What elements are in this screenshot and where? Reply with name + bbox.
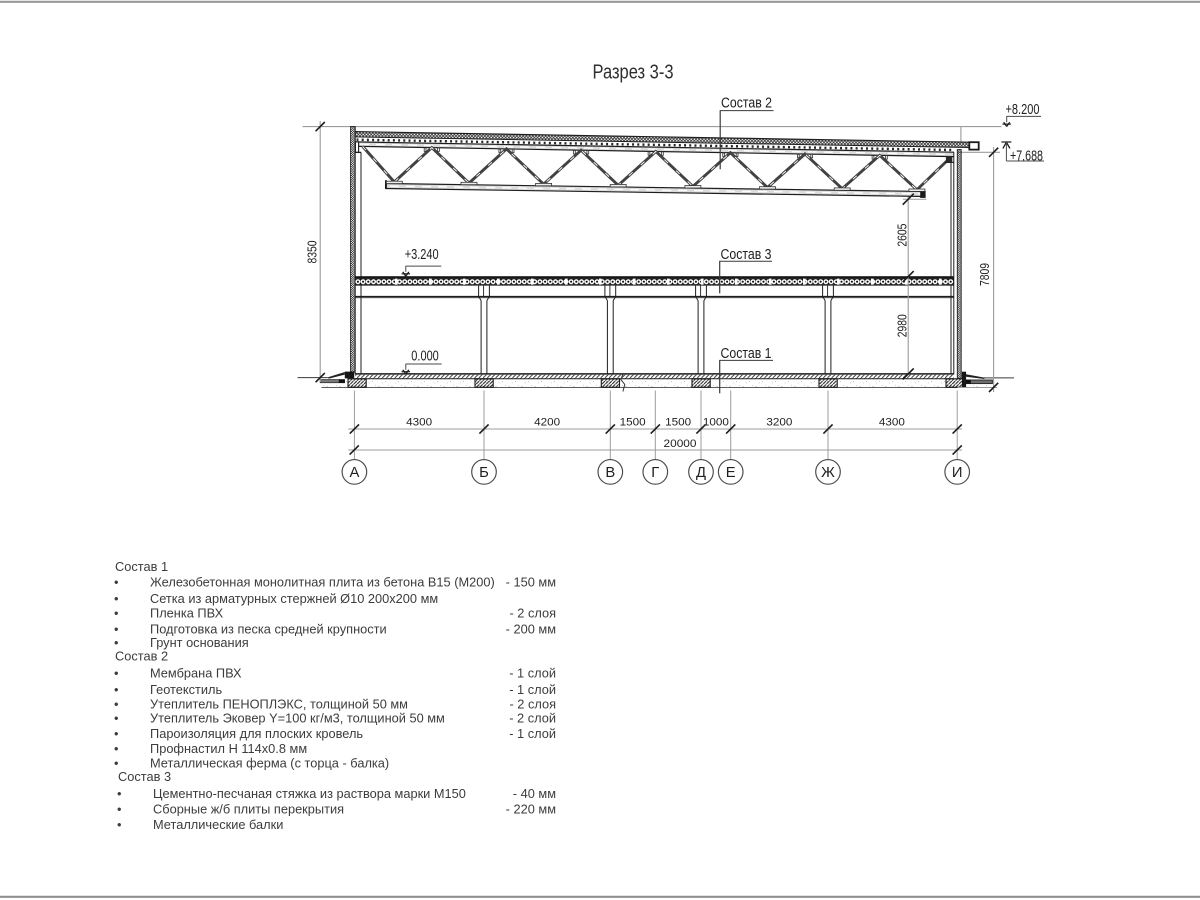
svg-text:- 2 слоя: - 2 слоя xyxy=(509,606,556,621)
svg-text:В: В xyxy=(605,465,615,481)
svg-text:- 40 мм: - 40 мм xyxy=(513,786,556,801)
svg-text:Мембрана ПВХ: Мембрана ПВХ xyxy=(150,666,242,681)
svg-text:Е: Е xyxy=(726,465,736,481)
svg-text:Г: Г xyxy=(651,465,659,481)
svg-text:- 1 слой: - 1 слой xyxy=(509,726,556,741)
svg-text:•: • xyxy=(114,606,118,621)
svg-text:1500: 1500 xyxy=(665,417,691,429)
svg-text:4300: 4300 xyxy=(406,417,432,429)
svg-text:•: • xyxy=(114,575,118,590)
svg-text:2980: 2980 xyxy=(894,314,909,337)
svg-text:Состав 1: Состав 1 xyxy=(115,559,168,574)
svg-text:Геотекстиль: Геотекстиль xyxy=(150,682,222,697)
svg-text:Профнастил Н 114x0.8 мм: Профнастил Н 114x0.8 мм xyxy=(150,741,307,756)
svg-text:•: • xyxy=(114,741,118,756)
svg-text:2605: 2605 xyxy=(894,224,909,247)
svg-text:7809: 7809 xyxy=(977,263,992,286)
svg-text:1000: 1000 xyxy=(703,417,729,429)
svg-text:Состав 2: Состав 2 xyxy=(721,95,772,111)
svg-text:3200: 3200 xyxy=(766,417,792,429)
svg-text:- 200 мм: - 200 мм xyxy=(506,622,556,637)
svg-text:Утеплитель ПЕНОПЛЭКС, толщиной: Утеплитель ПЕНОПЛЭКС, толщиной 50 мм xyxy=(150,697,408,712)
svg-text:4200: 4200 xyxy=(534,417,560,429)
svg-text:+7.688: +7.688 xyxy=(1010,149,1043,165)
svg-text:Железобетонная монолитная плит: Железобетонная монолитная плита из бетон… xyxy=(150,575,495,590)
svg-text:Разрез 3-3: Разрез 3-3 xyxy=(593,62,674,84)
svg-text:- 150 мм: - 150 мм xyxy=(506,575,556,590)
svg-text:Пленка ПВХ: Пленка ПВХ xyxy=(150,606,224,621)
svg-text:•: • xyxy=(114,591,118,606)
svg-text:Цементно-песчаная стяжка из ра: Цементно-песчаная стяжка из раствора мар… xyxy=(153,786,466,801)
svg-text:- 2 слой: - 2 слой xyxy=(509,711,556,726)
svg-text:Сетка из арматурных стержней Ø: Сетка из арматурных стержней Ø10 200x200… xyxy=(150,591,438,606)
svg-text:- 1 слой: - 1 слой xyxy=(509,666,556,681)
svg-text:+8.200: +8.200 xyxy=(1006,102,1040,118)
svg-text:•: • xyxy=(117,802,121,817)
svg-text:Металлическая ферма (с торца -: Металлическая ферма (с торца - балка) xyxy=(150,756,389,771)
svg-text:Ж: Ж xyxy=(821,465,835,481)
svg-text:И: И xyxy=(952,465,963,481)
svg-text:Состав 3: Состав 3 xyxy=(118,769,171,784)
svg-text:+3.240: +3.240 xyxy=(405,247,439,263)
svg-text:Д: Д xyxy=(696,465,706,481)
svg-text:Б: Б xyxy=(479,465,489,481)
svg-text:8350: 8350 xyxy=(305,241,320,264)
svg-text:Состав 1: Состав 1 xyxy=(721,346,772,362)
svg-text:20000: 20000 xyxy=(664,438,697,450)
svg-text:А: А xyxy=(349,465,359,481)
svg-text:•: • xyxy=(114,666,118,681)
svg-text:4300: 4300 xyxy=(879,417,905,429)
svg-text:Состав 2: Состав 2 xyxy=(115,649,168,664)
svg-text:0.000: 0.000 xyxy=(411,349,439,365)
svg-text:•: • xyxy=(114,711,118,726)
svg-text:•: • xyxy=(114,726,118,741)
svg-text:1500: 1500 xyxy=(620,417,646,429)
svg-text:- 2 слоя: - 2 слоя xyxy=(509,697,556,712)
svg-text:•: • xyxy=(117,786,121,801)
svg-text:Пароизоляция для плоских крове: Пароизоляция для плоских кровель xyxy=(150,726,363,741)
svg-text:Утеплитель Эковер Y=100 кг/м3,: Утеплитель Эковер Y=100 кг/м3, толщиной … xyxy=(150,711,445,726)
svg-text:•: • xyxy=(114,682,118,697)
svg-text:Сборные ж/б плиты перекрытия: Сборные ж/б плиты перекрытия xyxy=(153,802,344,817)
svg-text:- 1 слой: - 1 слой xyxy=(509,682,556,697)
svg-text:•: • xyxy=(117,817,121,832)
svg-text:•: • xyxy=(114,697,118,712)
svg-text:Металлические балки: Металлические балки xyxy=(153,817,283,832)
svg-text:- 220 мм: - 220 мм xyxy=(506,802,556,817)
